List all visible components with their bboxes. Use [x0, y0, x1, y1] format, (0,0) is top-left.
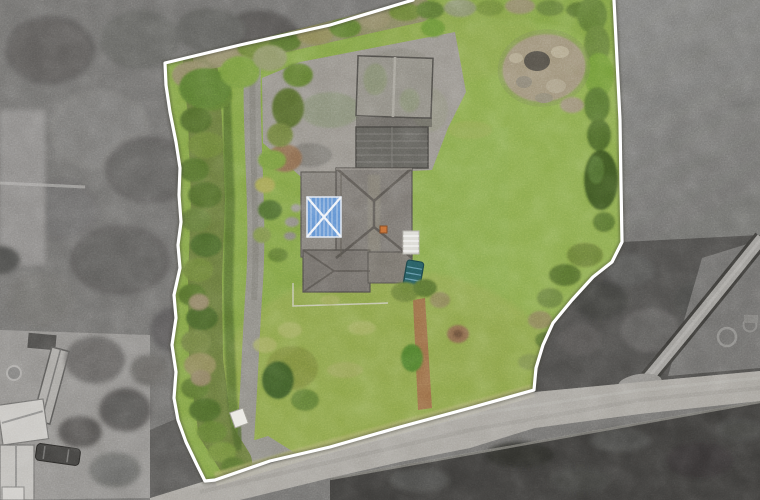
aerial-photo: [0, 0, 760, 500]
fine-grain-overlay: [0, 0, 760, 500]
aerial-photo-canvas: [0, 0, 760, 500]
